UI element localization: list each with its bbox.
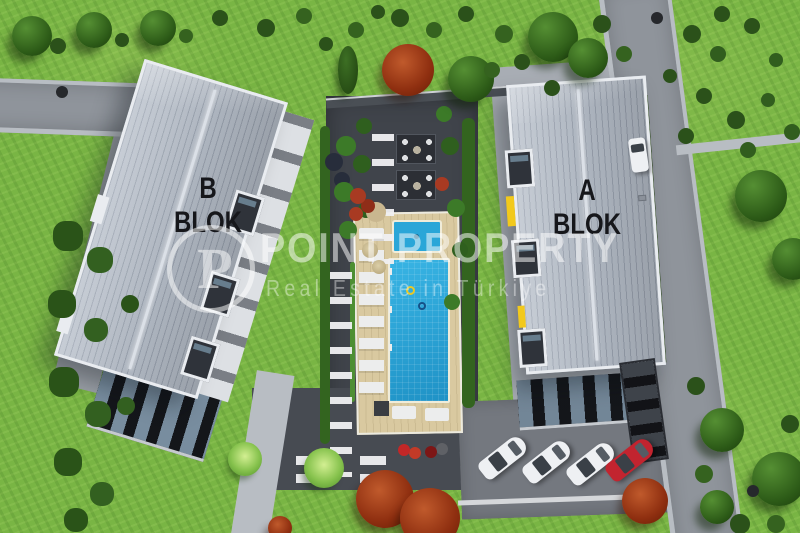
yellow-accent	[517, 305, 526, 327]
sun-lounger-pair	[392, 406, 416, 419]
hedge	[462, 118, 475, 408]
deck-cabinet	[374, 401, 389, 416]
yellow-accent	[506, 196, 516, 226]
hedge	[320, 126, 330, 444]
tree	[735, 170, 787, 222]
balcony	[505, 149, 536, 189]
pool-float	[418, 302, 426, 310]
aerial-site-render: B BLOK A BLOK P POINT PROPERTY Real Esta…	[0, 0, 800, 533]
block-a-label: A BLOK	[543, 174, 631, 242]
kids-pool	[392, 220, 442, 253]
pool-ladder	[389, 268, 392, 275]
red-tree	[382, 44, 434, 96]
palm-tree	[304, 448, 344, 488]
tree	[448, 56, 494, 102]
swimming-pool	[388, 258, 450, 403]
pool-float	[406, 286, 415, 295]
tree	[752, 452, 800, 506]
walkway-stripes	[330, 272, 352, 477]
cypress-tree	[338, 46, 358, 94]
block-b-label: B BLOK	[164, 172, 252, 240]
pergola-seating	[396, 170, 436, 200]
balcony	[517, 328, 548, 368]
tree	[700, 408, 744, 452]
tree	[12, 16, 52, 56]
parasol	[372, 260, 386, 274]
roof-vent	[638, 195, 646, 202]
people-figures	[0, 0, 8, 8]
tree	[568, 38, 608, 78]
pergola-seating	[396, 134, 436, 164]
parasol	[362, 242, 378, 258]
tree	[76, 12, 112, 48]
palm-tree	[228, 442, 262, 476]
balcony	[511, 238, 542, 278]
tree	[700, 490, 734, 524]
red-bush	[268, 516, 292, 533]
tree	[140, 10, 176, 46]
red-bush	[622, 478, 668, 524]
